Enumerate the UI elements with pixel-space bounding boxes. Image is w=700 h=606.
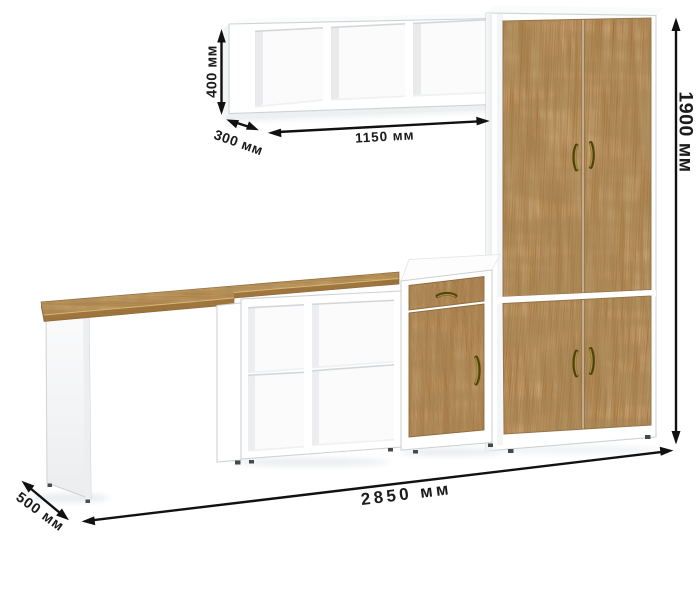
svg-text:400 мм: 400 мм	[205, 45, 221, 98]
svg-text:1900 мм: 1900 мм	[675, 91, 697, 172]
